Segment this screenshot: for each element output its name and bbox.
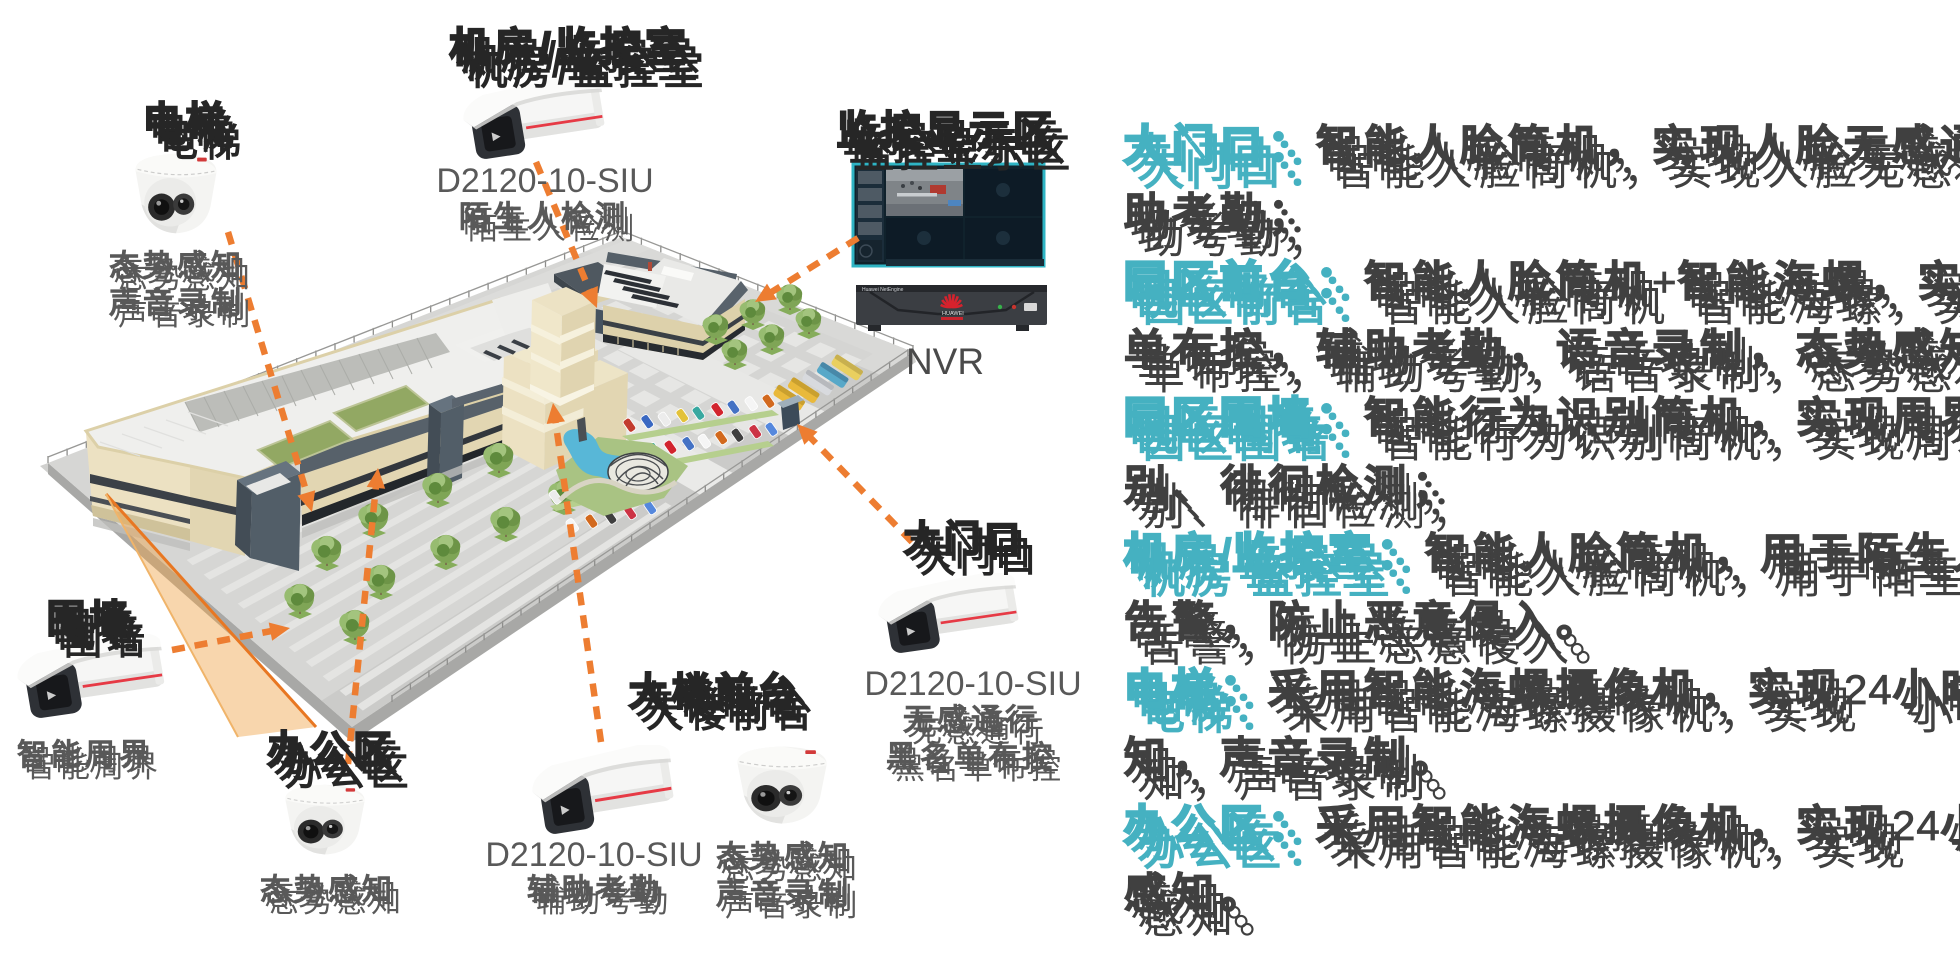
svg-text:HUAWEI: HUAWEI (942, 311, 964, 317)
svg-text:Huawei NetEngine: Huawei NetEngine (862, 287, 904, 293)
